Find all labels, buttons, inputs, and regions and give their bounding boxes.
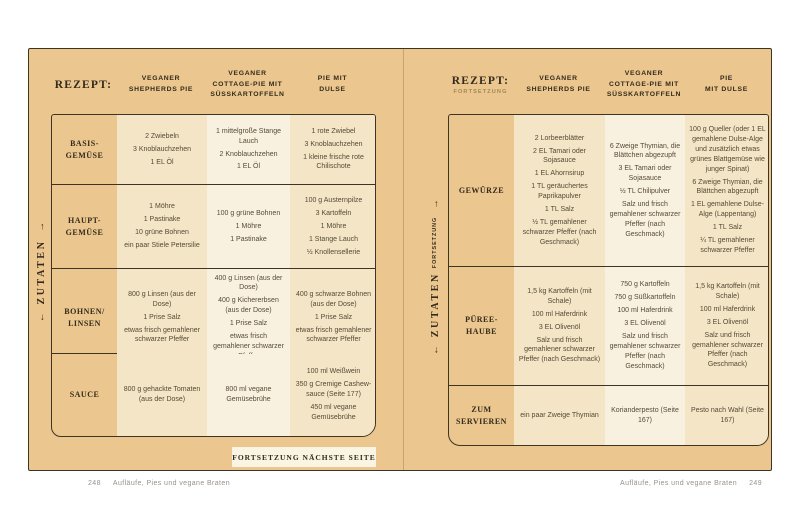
- table-row: BASIS- GEMÜSE2 Zwiebeln3 Knoblauchzehen1…: [52, 115, 375, 185]
- ingredient-item: 100 ml Weißwein: [307, 367, 361, 377]
- ingredient-item: etwas frisch gemahlener schwarzer Pfeffe…: [294, 326, 373, 346]
- ingredient-item: Salz und frisch gemahlener schwarzer Pfe…: [609, 332, 681, 371]
- column-header-shepherds-pie: VEGANER SHEPHERDS PIE: [513, 74, 604, 96]
- ingredient-item: Pesto nach Wahl (Seite 167): [689, 406, 766, 426]
- ingredient-item: 1 Prise Salz: [143, 313, 180, 323]
- right-page: REZEPT: FORTSETZUNG VEGANER SHEPHERDS PI…: [404, 49, 772, 470]
- ingredient-item: 1 Pastinake: [230, 235, 267, 245]
- running-title: Aufläufe, Pies und vegane Braten: [113, 480, 230, 487]
- ingredient-item: Salz und frisch gemahlener schwarzer Pfe…: [689, 331, 766, 370]
- ingredient-item: 1 Möhre: [236, 222, 262, 232]
- ingredient-item: 750 g Süßkartoffeln: [615, 293, 676, 303]
- right-page-footer: Aufläufe, Pies und vegane Braten249: [620, 480, 762, 487]
- ingredient-item: 400 g Linsen (aus der Dose): [211, 274, 286, 294]
- ingredient-item: 100 g grüne Bohnen: [217, 209, 280, 219]
- ingredient-item: 1 EL Öl: [237, 162, 260, 172]
- ingredient-item: 2 EL Tamari oder Sojasauce: [518, 147, 601, 167]
- ingredient-cell: 1 Möhre1 Pastinake10 grüne Bohnenein paa…: [117, 185, 207, 268]
- ingredient-item: 100 ml Haferdrink: [700, 305, 755, 315]
- recipe-header-title: REZEPT:: [51, 79, 116, 91]
- ingredient-item: 10 grüne Bohnen: [135, 228, 189, 238]
- ingredient-cell: 2 Zwiebeln3 Knoblauchzehen1 EL Öl: [117, 115, 207, 184]
- ingredient-cell: 400 g Linsen (aus der Dose)400 g Kichere…: [207, 269, 290, 366]
- left-page: REZEPT: VEGANER SHEPHERDS PIE VEGANER CO…: [29, 49, 403, 470]
- row-label: ZUM SERVIEREN: [449, 386, 514, 445]
- ingredients-table-right: GEWÜRZE2 Lorbeerblätter2 EL Tamari oder …: [448, 114, 769, 446]
- recipe-header-continued: REZEPT: FORTSETZUNG: [448, 75, 513, 95]
- ingredient-item: 1 TL geräuchertes Paprikapulver: [518, 182, 601, 202]
- ingredient-cell: 1 mittelgroße Stange Lauch2 Knoblauchzeh…: [207, 115, 290, 184]
- ingredient-cell: 100 g grüne Bohnen1 Möhre1 Pastinake: [207, 185, 290, 268]
- ingredient-item: 800 g Linsen (aus der Dose): [121, 290, 203, 310]
- ingredient-item: 1,5 kg Kartoffeln (mit Schale): [518, 287, 601, 307]
- row-label: HAUPT- GEMÜSE: [52, 185, 117, 268]
- page-number: 249: [749, 480, 762, 487]
- left-page-header: REZEPT: VEGANER SHEPHERDS PIE VEGANER CO…: [51, 59, 376, 111]
- arrow-down-icon: ←: [36, 313, 47, 323]
- ingredient-cell: 800 ml vegane Gemüsebrühe: [207, 354, 290, 436]
- ingredient-item: 100 ml Haferdrink: [617, 306, 672, 316]
- ingredient-item: 6 Zweige Thymian, die Blättchen abgezupf…: [609, 142, 681, 162]
- ingredient-item: 2 Lorbeerblätter: [535, 134, 584, 144]
- ingredient-item: 400 g Kichererbsen (aus der Dose): [211, 296, 286, 316]
- ingredient-item: ½ Knollensellerie: [307, 248, 360, 258]
- sidebar-zutaten-fortsetzung: ← ZUTATEN FORTSETZUNG →: [427, 192, 443, 362]
- ingredient-item: 1 EL Ahornsirup: [535, 169, 585, 179]
- ingredient-item: 3 EL Olivenöl: [539, 323, 580, 333]
- ingredient-item: 6 Zweige Thymian, die Blättchen abgezupf…: [689, 178, 766, 198]
- ingredient-item: 3 Knoblauchzehen: [305, 140, 363, 150]
- continuation-note: FORTSETZUNG NÄCHSTE SEITE: [232, 447, 376, 467]
- ingredient-item: ein paar Stiele Petersilie: [124, 241, 200, 251]
- ingredient-cell: ein paar Zweige Thymian: [514, 386, 605, 445]
- arrow-down-icon: ←: [430, 345, 441, 355]
- ingredient-item: 450 ml vegane Gemüsebrühe: [294, 403, 373, 423]
- ingredient-cell: 100 g Queller (oder 1 EL gemahlene Dulse…: [685, 115, 769, 266]
- ingredient-cell: 6 Zweige Thymian, die Blättchen abgezupf…: [605, 115, 685, 266]
- recipe-header: REZEPT:: [51, 79, 116, 91]
- ingredient-item: 1 Prise Salz: [230, 319, 267, 329]
- ingredient-cell: 1 rote Zwiebel3 Knoblauchzehen1 kleine f…: [290, 115, 376, 184]
- ingredient-item: 3 EL Olivenöl: [707, 318, 748, 328]
- column-header-dulse-pie: PIE MIT DULSE: [289, 74, 376, 96]
- ingredient-item: 1 Möhre: [321, 222, 347, 232]
- ingredient-item: 2 Knoblauchzehen: [220, 150, 278, 160]
- sidebar-zutaten-label: ZUTATEN: [430, 272, 441, 337]
- row-label: SAUCE: [52, 354, 117, 436]
- ingredient-cell: Korianderpesto (Seite 167): [605, 386, 685, 445]
- ingredient-item: Salz und frisch gemahlener schwarzer Pfe…: [518, 336, 601, 365]
- ingredient-item: 3 Kartoffeln: [316, 209, 352, 219]
- ingredient-cell: 800 g Linsen (aus der Dose)1 Prise Salze…: [117, 269, 207, 366]
- ingredient-item: ¼ TL gemahlener schwarzer Pfeffer: [689, 236, 766, 256]
- column-header-dulse-pie: PIE MIT DULSE: [684, 74, 769, 96]
- ingredient-item: etwas frisch gemahlener schwarzer Pfeffe…: [121, 326, 203, 346]
- ingredient-item: ½ TL gemahlener schwarzer Pfeffer (nach …: [518, 218, 601, 247]
- ingredient-cell: 2 Lorbeerblätter2 EL Tamari oder Sojasau…: [514, 115, 605, 266]
- ingredient-item: 1 EL Öl: [150, 158, 173, 168]
- book-spread: REZEPT: VEGANER SHEPHERDS PIE VEGANER CO…: [28, 48, 772, 471]
- ingredient-item: 1,5 kg Kartoffeln (mit Schale): [689, 282, 766, 302]
- column-header-cottage-pie: VEGANER COTTAGE-PIE MIT SÜSSKARTOFFELN: [206, 69, 289, 102]
- ingredient-cell: 100 g Austernpilze3 Kartoffeln1 Möhre1 S…: [290, 185, 376, 268]
- ingredient-item: 3 EL Olivenöl: [624, 319, 665, 329]
- ingredient-cell: 1,5 kg Kartoffeln (mit Schale)100 ml Haf…: [685, 267, 769, 385]
- recipe-header-title: REZEPT:: [448, 75, 513, 87]
- table-row: GEWÜRZE2 Lorbeerblätter2 EL Tamari oder …: [449, 115, 768, 267]
- table-row: SAUCE800 g gehackte Tomaten (aus der Dos…: [52, 354, 375, 436]
- ingredients-table-left: BASIS- GEMÜSE2 Zwiebeln3 Knoblauchzehen1…: [51, 114, 376, 437]
- sidebar-fortsetzung-label: FORTSETZUNG: [432, 217, 438, 268]
- sidebar-zutaten-label: ZUTATEN: [36, 239, 47, 304]
- ingredient-item: 2 Zwiebeln: [145, 132, 179, 142]
- ingredient-item: 1 mittelgroße Stange Lauch: [211, 127, 286, 147]
- ingredient-item: 1 kleine frische rote Chilischote: [294, 153, 373, 173]
- ingredient-item: Salz und frisch gemahlener schwarzer Pfe…: [609, 200, 681, 239]
- ingredient-item: 400 g schwarze Bohnen (aus der Dose): [294, 290, 373, 310]
- ingredient-item: 1 Pastinake: [144, 215, 181, 225]
- ingredient-cell: 800 g gehackte Tomaten (aus der Dose): [117, 354, 207, 436]
- table-row: PÜREE- HAUBE1,5 kg Kartoffeln (mit Schal…: [449, 267, 768, 386]
- ingredient-item: ein paar Zweige Thymian: [520, 411, 598, 421]
- ingredient-item: 1 TL Salz: [545, 205, 574, 215]
- ingredient-item: 100 g Queller (oder 1 EL gemahlene Dulse…: [689, 125, 766, 174]
- left-page-footer: 248Aufläufe, Pies und vegane Braten: [88, 480, 230, 487]
- page-number: 248: [88, 480, 101, 487]
- ingredient-item: 3 Knoblauchzehen: [133, 145, 191, 155]
- row-label: PÜREE- HAUBE: [449, 267, 514, 385]
- right-page-header: REZEPT: FORTSETZUNG VEGANER SHEPHERDS PI…: [448, 59, 769, 111]
- arrow-up-icon: →: [430, 199, 441, 209]
- row-label: GEWÜRZE: [449, 115, 514, 266]
- table-row: HAUPT- GEMÜSE1 Möhre1 Pastinake10 grüne …: [52, 185, 375, 269]
- ingredient-item: 1 Möhre: [149, 202, 175, 212]
- ingredient-item: 100 g Austernpilze: [305, 196, 363, 206]
- column-header-shepherds-pie: VEGANER SHEPHERDS PIE: [116, 74, 206, 96]
- ingredient-cell: 100 ml Weißwein350 g Cremige Cashew-sauc…: [290, 354, 376, 436]
- ingredient-cell: 400 g schwarze Bohnen (aus der Dose)1 Pr…: [290, 269, 376, 366]
- column-header-cottage-pie: VEGANER COTTAGE-PIE MIT SÜSSKARTOFFELN: [604, 69, 684, 102]
- ingredient-item: 750 g Kartoffeln: [620, 280, 669, 290]
- ingredient-item: 3 EL Tamari oder Sojasauce: [609, 164, 681, 184]
- ingredient-item: 1 TL Salz: [713, 223, 742, 233]
- table-row: BOHNEN/ LINSEN800 g Linsen (aus der Dose…: [52, 269, 375, 354]
- table-row: ZUM SERVIERENein paar Zweige ThymianKori…: [449, 386, 768, 445]
- ingredient-cell: 1,5 kg Kartoffeln (mit Schale)100 ml Haf…: [514, 267, 605, 385]
- ingredient-item: 100 ml Haferdrink: [532, 310, 587, 320]
- ingredient-item: 1 EL gemahlene Dulse-Alge (Lappentang): [689, 200, 766, 220]
- ingredient-cell: 750 g Kartoffeln750 g Süßkartoffeln100 m…: [605, 267, 685, 385]
- ingredient-cell: Pesto nach Wahl (Seite 167): [685, 386, 769, 445]
- ingredient-item: 1 rote Zwiebel: [312, 127, 356, 137]
- ingredient-item: 800 g gehackte Tomaten (aus der Dose): [121, 385, 203, 405]
- row-label: BASIS- GEMÜSE: [52, 115, 117, 184]
- sidebar-zutaten: ← ZUTATEN →: [33, 207, 49, 337]
- ingredient-item: 350 g Cremige Cashew-sauce (Seite 177): [294, 380, 373, 400]
- recipe-header-subtitle: FORTSETZUNG: [448, 89, 513, 95]
- ingredient-item: 800 ml vegane Gemüsebrühe: [211, 385, 286, 405]
- arrow-up-icon: →: [36, 222, 47, 232]
- ingredient-item: 1 Stange Lauch: [309, 235, 358, 245]
- running-title: Aufläufe, Pies und vegane Braten: [620, 480, 737, 487]
- ingredient-item: 1 Prise Salz: [315, 313, 352, 323]
- row-label: BOHNEN/ LINSEN: [52, 269, 117, 366]
- ingredient-item: ½ TL Chilipulver: [620, 187, 670, 197]
- ingredient-item: Korianderpesto (Seite 167): [609, 406, 681, 426]
